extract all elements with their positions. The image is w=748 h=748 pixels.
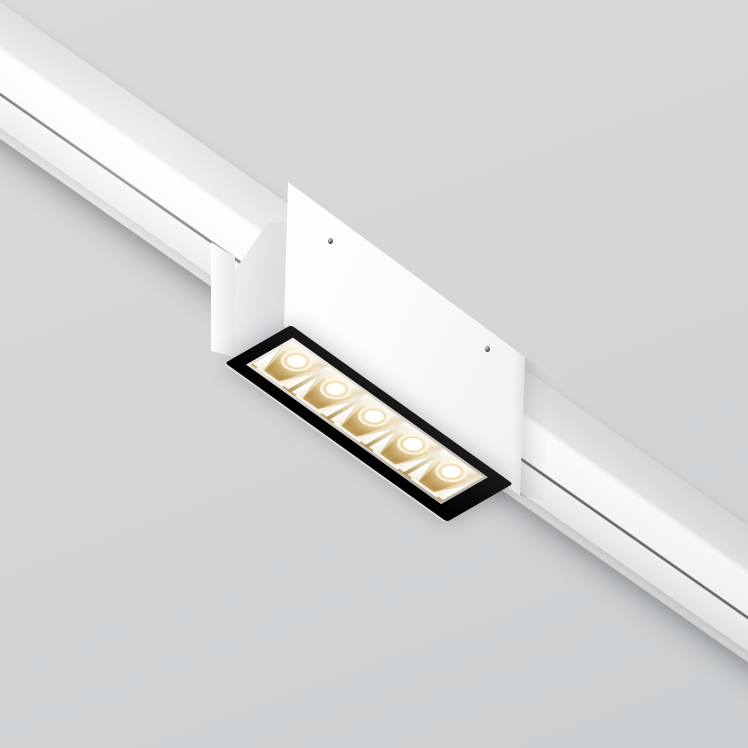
screw-hole-2: [485, 346, 490, 352]
screw-hole-1: [328, 238, 333, 244]
track-connector-stem: [210, 242, 236, 360]
scene: [0, 0, 748, 748]
